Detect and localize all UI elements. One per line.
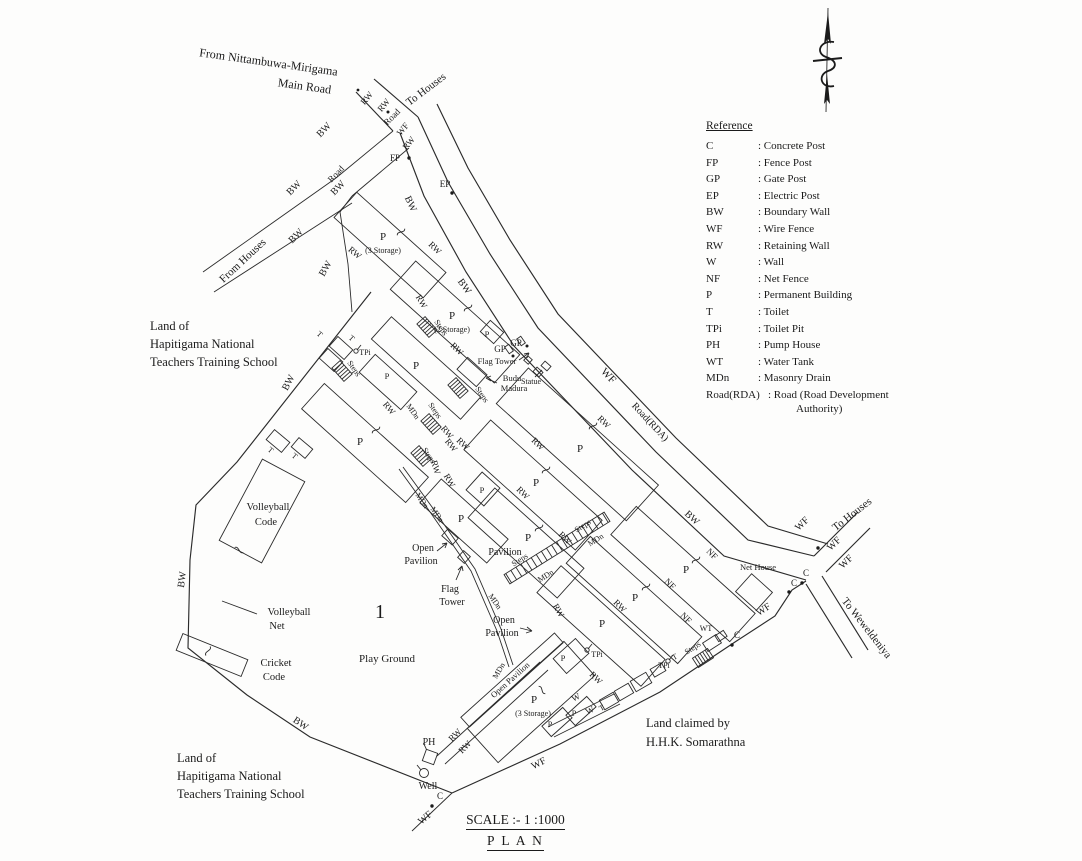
- north-arrow: [813, 8, 842, 112]
- rw-label: RW: [455, 435, 472, 452]
- plan-text: P L A N: [487, 833, 544, 851]
- cricket-line1: Cricket: [261, 658, 292, 669]
- rw-label: RW: [346, 244, 364, 261]
- rw-label: RW: [414, 293, 430, 311]
- volleyball-court-line1: Volleyball: [247, 502, 290, 513]
- legend-title: Reference: [706, 120, 911, 132]
- statue-structure-2: [541, 361, 551, 371]
- legend-desc: : Retaining Wall: [758, 240, 911, 252]
- open-pavilion-1-line2: Pavilion: [404, 556, 437, 567]
- nf-label: NF: [663, 576, 678, 591]
- legend-desc: : Wire Fence: [758, 223, 911, 235]
- building-label: P: [385, 371, 390, 381]
- legend-row: C: Concrete Post: [706, 140, 911, 152]
- legend-desc: : Toilet: [758, 306, 911, 318]
- wall-mark: [538, 686, 546, 695]
- storage-label: (3 Storage): [515, 709, 551, 718]
- rw-label: RW: [530, 435, 547, 452]
- building-label: P: [548, 720, 553, 729]
- land-claimed-line2: H.H.K. Somarathna: [646, 733, 745, 752]
- plot-number: 1: [375, 601, 385, 623]
- legend-desc: : Concrete Post: [758, 140, 911, 152]
- storage-label: (3 Storage): [365, 246, 401, 255]
- legend-row: GP: Gate Post: [706, 173, 911, 185]
- to-houses-right-label: To Houses: [830, 496, 874, 534]
- reference-legend: Reference C: Concrete Post FP: Fence Pos…: [706, 120, 911, 415]
- wall-mark: [205, 646, 211, 656]
- c-label: C: [437, 791, 443, 801]
- wf-label: WF: [825, 535, 844, 554]
- wf-label: WF: [530, 755, 549, 772]
- building-label: P: [561, 653, 566, 663]
- building-label: P: [480, 485, 485, 495]
- legend-desc: : Water Tank: [758, 356, 911, 368]
- net-house-label: Net House: [740, 562, 776, 572]
- building-label: P: [449, 310, 455, 322]
- toilet-label: T: [670, 652, 679, 662]
- land-of-line2: Hapitigama National: [150, 335, 278, 353]
- legend-abbr: EP: [706, 190, 758, 202]
- legend-row: RW: Retaining Wall: [706, 240, 911, 252]
- toilet-pit-label: TPi: [591, 650, 603, 659]
- nf-label: NF: [679, 610, 694, 625]
- legend-row: Road(RDA): Road (Road Development: [706, 389, 911, 401]
- well-structure: [417, 765, 429, 778]
- legend-row: FP: Fence Post: [706, 157, 911, 169]
- gate-post-label: GP: [494, 344, 506, 354]
- land-of-line3: Teachers Training School: [150, 353, 278, 371]
- building-label: P: [525, 532, 531, 544]
- bw-label: BW: [315, 120, 334, 140]
- steps-label: Steps: [573, 517, 592, 534]
- legend-desc: : Gate Post: [758, 173, 911, 185]
- toilet-a2: [319, 348, 343, 371]
- wf-label: WF: [598, 366, 618, 386]
- legend-row: MDn: Masonry Drain: [706, 372, 911, 384]
- rw-label: RW: [358, 89, 375, 107]
- legend-row: WF: Wire Fence: [706, 223, 911, 235]
- volleyball-court-line2: Code: [255, 517, 278, 528]
- toilet-c3: [630, 672, 652, 691]
- bw-label: BW: [280, 373, 298, 393]
- wall-label: W: [584, 704, 596, 717]
- c-label: C: [734, 630, 740, 640]
- legend-abbr: FP: [706, 157, 758, 169]
- steps-hatch: [692, 648, 713, 667]
- legend-abbr: WF: [706, 223, 758, 235]
- rw-label: RW: [557, 529, 574, 546]
- from-main-road-line2: Main Road: [277, 75, 332, 96]
- madura-label: Madura: [501, 383, 528, 393]
- building-label: P: [380, 231, 386, 243]
- legend-desc: : Fence Post: [758, 157, 911, 169]
- building-label: P: [485, 329, 490, 339]
- flag-tower-1-label: Flag Tower: [478, 356, 517, 366]
- legend-abbr: PH: [706, 339, 758, 351]
- legend-abbr: BW: [706, 206, 758, 218]
- wf-label: WF: [837, 553, 856, 572]
- bw-label: BW: [317, 259, 335, 279]
- legend-row: P: Permanent Building: [706, 289, 911, 301]
- rw-label: RW: [515, 484, 532, 501]
- legend-row: W: Wall: [706, 256, 911, 268]
- rw-label: RW: [446, 726, 463, 743]
- toilet-label: T: [315, 329, 325, 339]
- legend-abbr: TPi: [706, 323, 758, 335]
- bw-label: BW: [285, 178, 305, 198]
- to-houses-top-label: To Houses: [404, 71, 448, 109]
- rw-label: RW: [381, 399, 398, 417]
- legend-abbr: MDn: [706, 372, 758, 384]
- legend-desc: : Permanent Building: [758, 289, 911, 301]
- bw-label: BW: [402, 194, 419, 214]
- road-label: Road: [326, 163, 347, 184]
- toilet-c2: [614, 683, 633, 701]
- scale-block: SCALE :- 1 :1000 P L A N: [428, 812, 603, 851]
- land-of-block-upper: Land of Hapitigama National Teachers Tra…: [150, 317, 278, 371]
- pump-house-label: PH: [423, 737, 436, 748]
- open-pavilion-1-line1: Open: [412, 543, 434, 554]
- mdn-label: MDn: [536, 568, 555, 585]
- rw-label: RW: [612, 597, 629, 614]
- legend-abbr: Road(RDA): [706, 389, 768, 401]
- legend-desc: : Masonry Drain: [758, 372, 911, 384]
- land-claimed-line1: Land claimed by: [646, 714, 745, 733]
- bw-label: BW: [176, 570, 189, 588]
- legend-abbr: C: [706, 140, 758, 152]
- rw-label: RW: [400, 134, 417, 152]
- building-label: P: [632, 592, 638, 604]
- land-of-line3: Teachers Training School: [177, 785, 305, 803]
- mdn-label: MDn: [429, 505, 446, 524]
- legend-row: EP: Electric Post: [706, 190, 911, 202]
- c-label: C: [803, 568, 809, 578]
- toilet-label: T: [290, 451, 300, 461]
- legend-desc: : Net Fence: [758, 273, 911, 285]
- water-tank-label: WT: [700, 624, 713, 633]
- rw-label: RW: [427, 239, 444, 256]
- legend-row: TPi: Toilet Pit: [706, 323, 911, 335]
- open-pavilion-strip-label: Open Pavilion: [488, 659, 532, 700]
- building-label: P: [533, 477, 539, 489]
- land-of-line1: Land of: [177, 749, 305, 767]
- toilet-pit-label: TPi: [658, 661, 670, 670]
- open-pavilion-1-structure: [442, 529, 458, 545]
- building-label: P: [683, 564, 689, 576]
- legend-desc: : Toilet Pit: [758, 323, 911, 335]
- survey-plan: From Nittambuwa-Mirigama Main Road To Ho…: [0, 0, 1082, 861]
- legend-abbr: GP: [706, 173, 758, 185]
- building-label: P: [577, 443, 583, 455]
- plan-drawing: From Nittambuwa-Mirigama Main Road To Ho…: [0, 0, 1082, 861]
- rw-label: RW: [442, 472, 458, 490]
- building-row-d: [302, 384, 429, 503]
- legend-desc: : Boundary Wall: [758, 206, 911, 218]
- legend-abbr: RW: [706, 240, 758, 252]
- toilet-label: T: [347, 333, 357, 343]
- storage-label: (2 Storage): [434, 325, 470, 334]
- ep-label: EP: [440, 179, 451, 189]
- legend-abbr: W: [706, 256, 758, 268]
- open-pavilion-2-line2: Pavilion: [485, 628, 518, 639]
- land-of-line1: Land of: [150, 317, 278, 335]
- legend-abbr: P: [706, 289, 758, 301]
- land-of-line2: Hapitigama National: [177, 767, 305, 785]
- legend-row: PH: Pump House: [706, 339, 911, 351]
- water-tank-structure: [703, 634, 722, 651]
- land-of-block-lower: Land of Hapitigama National Teachers Tra…: [177, 749, 305, 803]
- legend-desc: : Pump House: [758, 339, 911, 351]
- toilet-pit-label: TPi: [359, 348, 371, 357]
- flag-tower-2-line1: Flag: [441, 584, 459, 595]
- steps-label: Steps: [345, 359, 362, 378]
- wf-label: WF: [754, 601, 773, 619]
- building-label: P: [531, 694, 537, 706]
- building-label: P: [413, 360, 419, 372]
- cricket-pitch: [176, 634, 248, 677]
- from-main-road-line1: From Nittambuwa-Mirigama: [198, 45, 339, 78]
- legend-abbr: WT: [706, 356, 758, 368]
- toilet-label: T: [266, 445, 276, 455]
- steps-hatch: [448, 378, 468, 399]
- cricket-line2: Code: [263, 672, 286, 683]
- legend-desc: : Road (Road Development: [768, 389, 911, 401]
- fp-label: FP: [390, 153, 400, 163]
- legend-row: WT: Water Tank: [706, 356, 911, 368]
- rw-label: RW: [588, 669, 605, 686]
- budu-label: Budu: [503, 373, 522, 383]
- legend-desc: : Electric Post: [758, 190, 911, 202]
- flag-tower-2-line2: Tower: [439, 597, 465, 608]
- wf-label: WF: [793, 515, 812, 534]
- building-label: P: [572, 709, 577, 718]
- building-label: P: [357, 436, 363, 448]
- bw-label: BW: [682, 509, 702, 528]
- legend-desc: : Wall: [758, 256, 911, 268]
- c-label: C: [791, 578, 797, 588]
- play-ground-label: Play Ground: [359, 653, 415, 665]
- land-claimed-block: Land claimed by H.H.K. Somarathna: [646, 714, 745, 751]
- open-pavilion-2-line1: Open: [493, 615, 515, 626]
- well-label: Well: [419, 781, 438, 792]
- legend-abbr: T: [706, 306, 758, 318]
- wall-mark: [234, 547, 244, 554]
- mdn-label: MDn: [405, 402, 422, 421]
- legend-abbr: NF: [706, 273, 758, 285]
- nf-label: NF: [705, 546, 720, 561]
- building-label: P: [458, 513, 464, 525]
- legend-row: T: Toilet: [706, 306, 911, 318]
- road-rda-label: Road(RDA): [629, 401, 670, 444]
- volleyball-net-line1: Volleyball: [268, 607, 311, 618]
- legend-row: BW: Boundary Wall: [706, 206, 911, 218]
- legend-row: NF: Net Fence: [706, 273, 911, 285]
- steps-label: Steps: [473, 385, 490, 404]
- building-small-m: [553, 639, 589, 674]
- legend-desc-continuation: Authority): [796, 403, 911, 415]
- bw-label: BW: [291, 715, 311, 733]
- volleyball-net-line2: Net: [269, 621, 284, 632]
- rw-label: RW: [596, 413, 613, 430]
- building-label: P: [599, 618, 605, 630]
- scale-text: SCALE :- 1 :1000: [466, 812, 565, 830]
- pavilion-label: Pavilion: [488, 547, 521, 558]
- gate-post-label: GP: [510, 338, 522, 348]
